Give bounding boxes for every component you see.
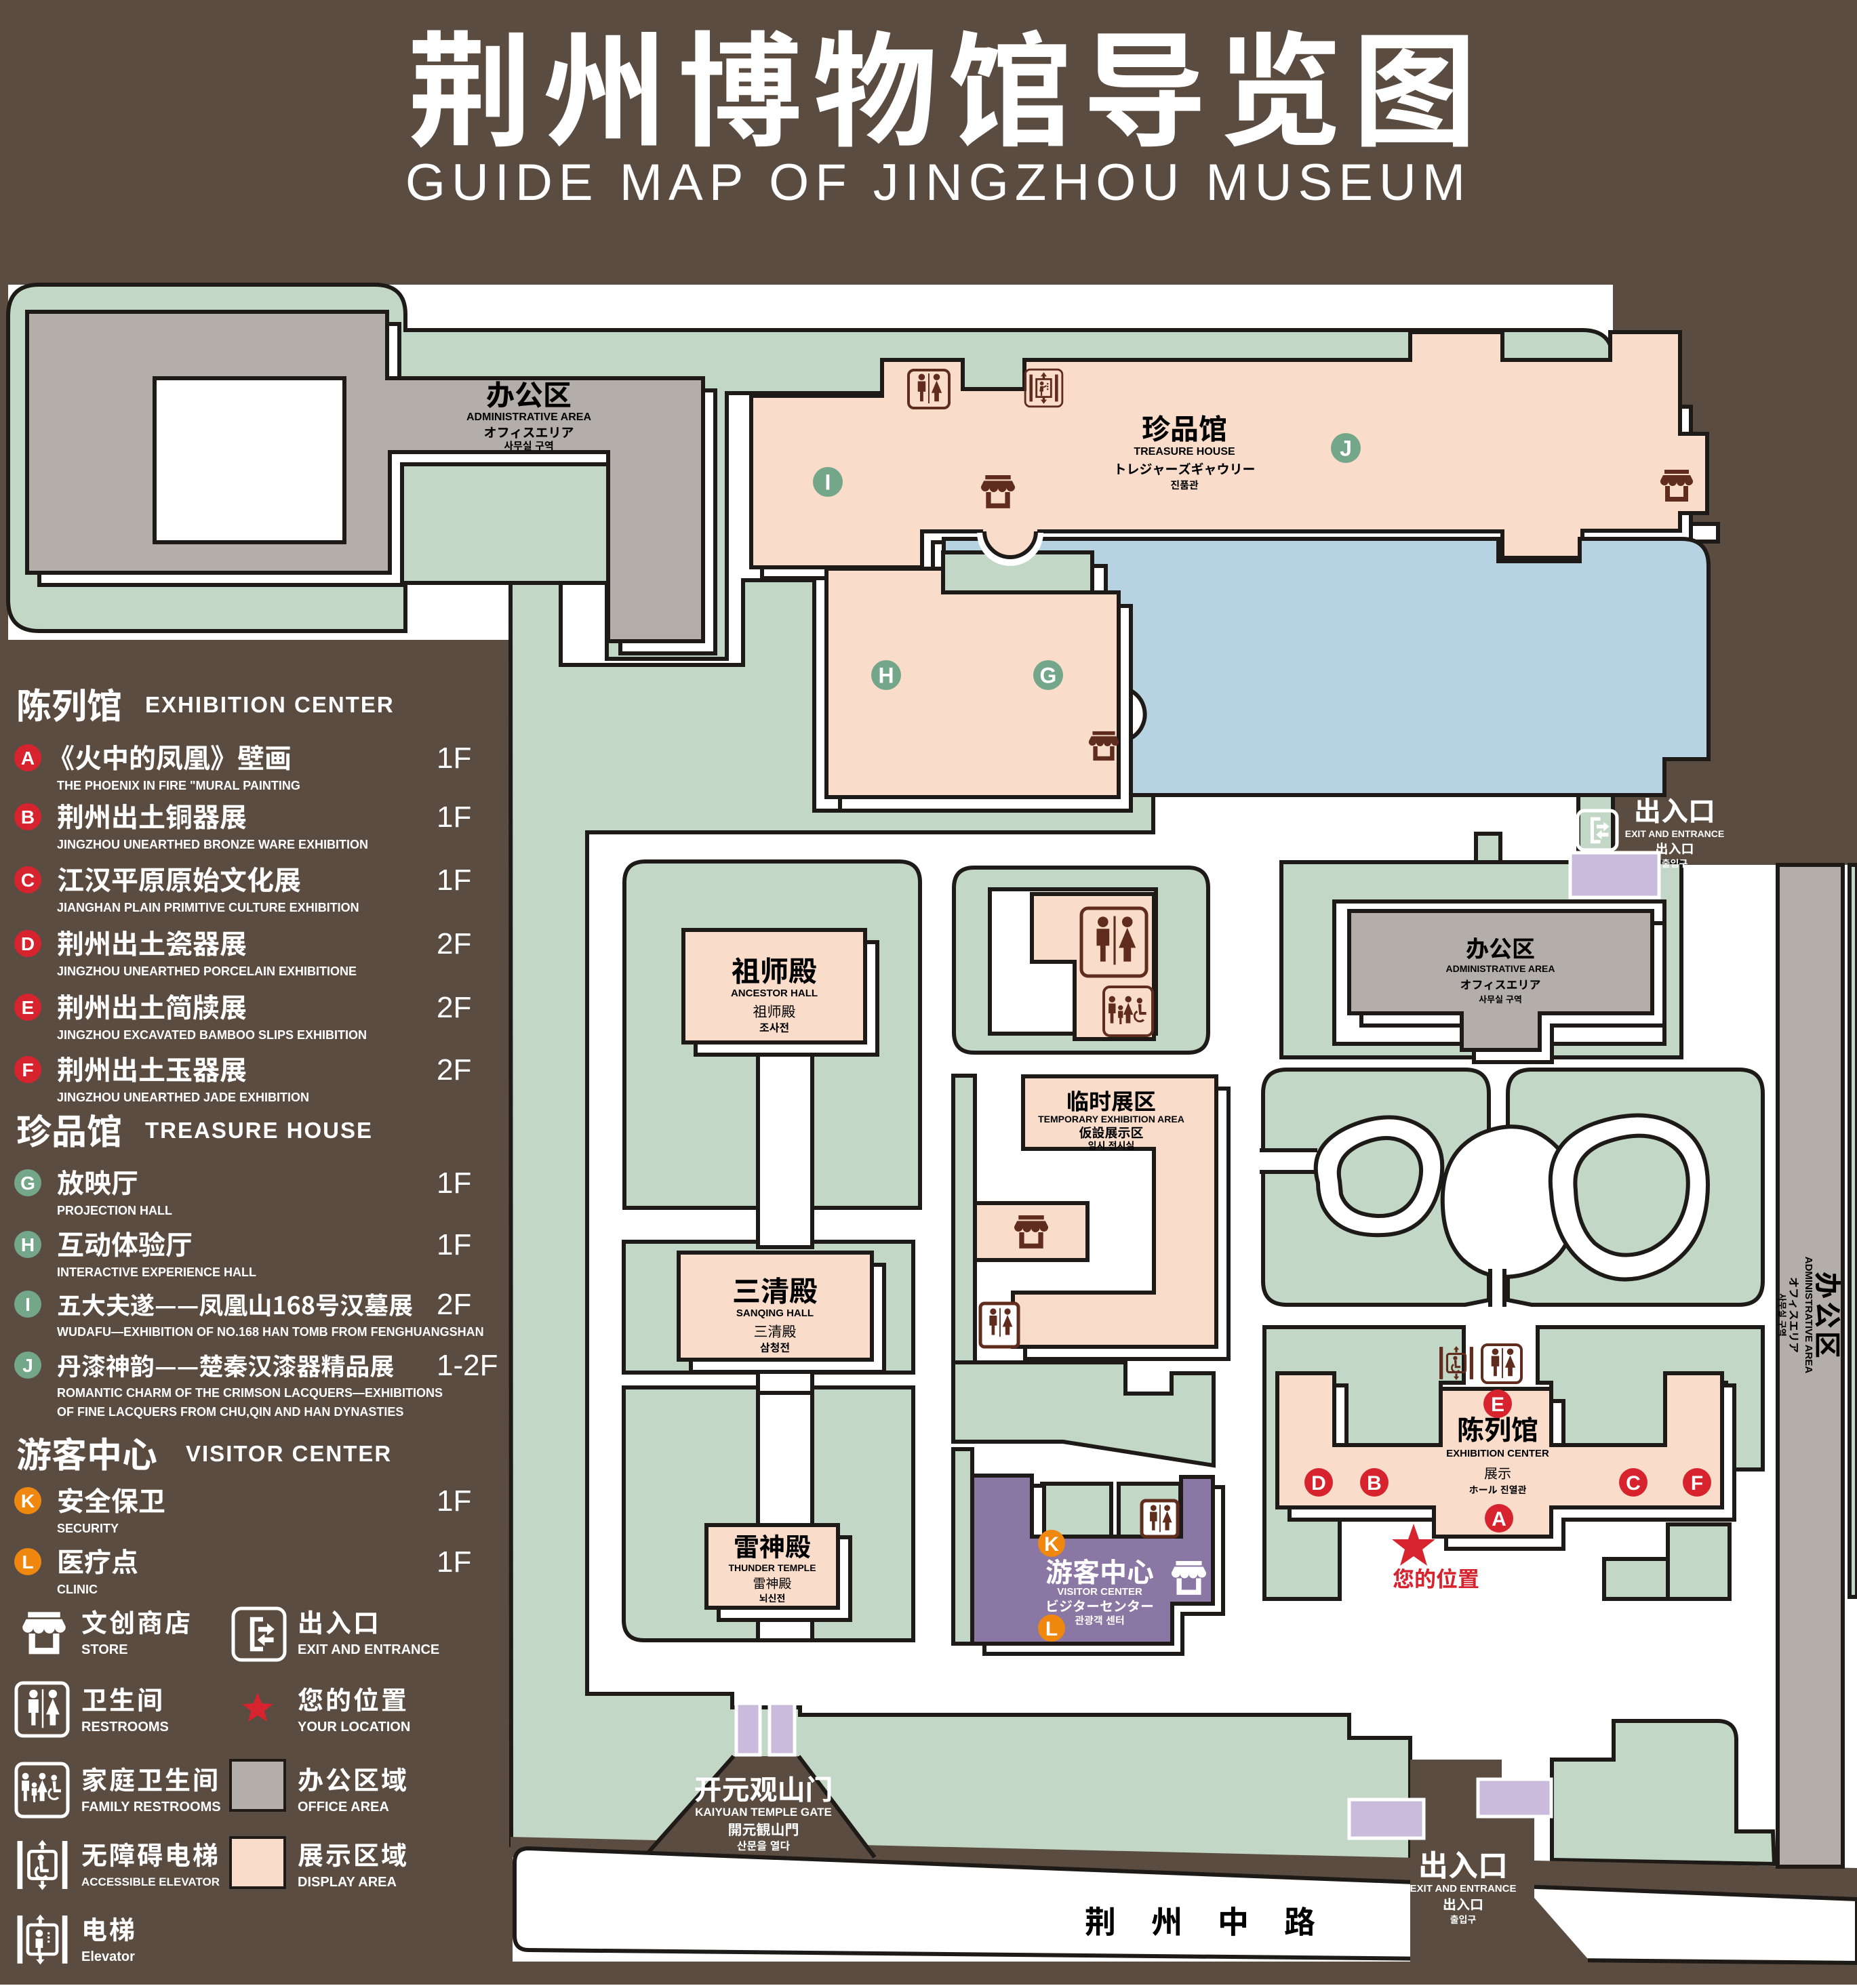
svg-text:C: C xyxy=(1626,1472,1641,1495)
svg-text:K: K xyxy=(21,1490,35,1512)
svg-text:1F: 1F xyxy=(437,1484,471,1518)
svg-text:2F: 2F xyxy=(437,991,471,1024)
svg-text:EXHIBITION CENTER: EXHIBITION CENTER xyxy=(1446,1448,1549,1459)
svg-text:ADMINISTRATIVE AREA: ADMINISTRATIVE AREA xyxy=(1803,1257,1814,1374)
svg-text:JINGZHOU EXCAVATED BAMBOO SLIP: JINGZHOU EXCAVATED BAMBOO SLIPS EXHIBITI… xyxy=(57,1028,367,1042)
svg-text:1F: 1F xyxy=(437,1545,471,1579)
svg-text:THUNDER TEMPLE: THUNDER TEMPLE xyxy=(728,1562,816,1573)
svg-text:L: L xyxy=(1045,1618,1058,1640)
svg-text:2F: 2F xyxy=(437,927,471,960)
svg-text:B: B xyxy=(21,807,35,828)
svg-text:F: F xyxy=(22,1059,33,1080)
svg-text:H: H xyxy=(21,1234,35,1255)
svg-text:J: J xyxy=(22,1355,33,1376)
svg-text:Elevator: Elevator xyxy=(81,1949,135,1964)
svg-text:VISITOR CENTER: VISITOR CENTER xyxy=(1057,1586,1142,1598)
svg-text:2F: 2F xyxy=(437,1288,471,1321)
svg-text:SECURITY: SECURITY xyxy=(57,1522,119,1535)
svg-text:EXIT AND ENTRANCE: EXIT AND ENTRANCE xyxy=(298,1642,439,1657)
svg-text:SANQING HALL: SANQING HALL xyxy=(736,1307,814,1319)
svg-text:EXIT AND ENTRANCE: EXIT AND ENTRANCE xyxy=(1410,1883,1517,1894)
svg-text:STORE: STORE xyxy=(81,1642,128,1657)
svg-text:I: I xyxy=(825,470,831,495)
svg-text:E: E xyxy=(1491,1394,1504,1416)
svg-text:L: L xyxy=(22,1551,33,1573)
svg-text:G: G xyxy=(20,1173,35,1194)
svg-text:EXIT AND ENTRANCE: EXIT AND ENTRANCE xyxy=(1625,828,1725,839)
svg-text:E: E xyxy=(22,997,35,1018)
svg-text:G: G xyxy=(1040,664,1057,688)
svg-text:VISITOR CENTER: VISITOR CENTER xyxy=(186,1441,392,1466)
svg-text:1F: 1F xyxy=(437,1228,471,1261)
svg-text:A: A xyxy=(1492,1508,1506,1530)
svg-text:ROMANTIC CHARM OF THE CRIMSON: ROMANTIC CHARM OF THE CRIMSON LACQUERS—E… xyxy=(57,1386,443,1400)
svg-text:D: D xyxy=(21,933,35,954)
svg-text:OF FINE LACQUERS FROM CHU,QIN: OF FINE LACQUERS FROM CHU,QIN AND HAN DY… xyxy=(57,1405,403,1419)
svg-text:K: K xyxy=(1044,1533,1059,1556)
svg-text:YOUR LOCATION: YOUR LOCATION xyxy=(298,1720,410,1735)
svg-text:ACCESSIBLE ELEVATOR: ACCESSIBLE ELEVATOR xyxy=(81,1875,220,1888)
svg-text:JIANGHAN PLAIN PRIMITIVE CULTU: JIANGHAN PLAIN PRIMITIVE CULTURE EXHIBIT… xyxy=(57,901,359,914)
svg-text:ADMINISTRATIVE AREA: ADMINISTRATIVE AREA xyxy=(466,411,591,423)
svg-text:DISPLAY AREA: DISPLAY AREA xyxy=(298,1875,397,1890)
svg-text:OFFICE AREA: OFFICE AREA xyxy=(298,1800,389,1814)
svg-text:TREASURE HOUSE: TREASURE HOUSE xyxy=(145,1118,373,1143)
svg-text:1-2F: 1-2F xyxy=(437,1349,498,1382)
svg-text:1F: 1F xyxy=(437,742,471,775)
svg-text:J: J xyxy=(1340,437,1352,461)
svg-text:B: B xyxy=(1367,1472,1382,1495)
svg-text:H: H xyxy=(878,664,894,688)
svg-text:RESTROOMS: RESTROOMS xyxy=(81,1720,169,1735)
svg-text:TREASURE HOUSE: TREASURE HOUSE xyxy=(1134,446,1235,458)
svg-text:INTERACTIVE EXPERIENCE HALL: INTERACTIVE EXPERIENCE HALL xyxy=(57,1265,256,1279)
svg-text:FAMILY RESTROOMS: FAMILY RESTROOMS xyxy=(81,1800,221,1814)
svg-text:WUDAFU—EXHIBITION OF NO.168 HA: WUDAFU—EXHIBITION OF NO.168 HAN TOMB FRO… xyxy=(57,1325,484,1339)
svg-text:ANCESTOR HALL: ANCESTOR HALL xyxy=(731,988,818,999)
svg-text:A: A xyxy=(21,748,35,769)
svg-text:1F: 1F xyxy=(437,1167,471,1200)
svg-text:I: I xyxy=(25,1294,31,1315)
svg-text:JINGZHOU UNEARTHED BRONZE WARE: JINGZHOU UNEARTHED BRONZE WARE EXHIBITIO… xyxy=(57,838,368,851)
svg-text:JINGZHOU UNEARTHED PORCELAIN E: JINGZHOU UNEARTHED PORCELAIN EXHIBITIONE xyxy=(57,965,357,978)
svg-text:CLINIC: CLINIC xyxy=(57,1583,98,1596)
svg-text:PROJECTION HALL: PROJECTION HALL xyxy=(57,1204,172,1217)
svg-text:ADMINISTRATIVE AREA: ADMINISTRATIVE AREA xyxy=(1446,963,1555,974)
svg-text:JINGZHOU UNEARTHED JADE EXHIBI: JINGZHOU UNEARTHED JADE EXHIBITION xyxy=(57,1091,309,1104)
svg-text:EXHIBITION CENTER: EXHIBITION CENTER xyxy=(145,692,395,717)
svg-text:D: D xyxy=(1311,1472,1326,1495)
svg-text:1F: 1F xyxy=(437,800,471,834)
svg-text:F: F xyxy=(1691,1472,1703,1495)
svg-text:2F: 2F xyxy=(437,1053,471,1087)
svg-text:KAIYUAN TEMPLE GATE: KAIYUAN TEMPLE GATE xyxy=(695,1806,832,1819)
svg-text:C: C xyxy=(21,870,35,891)
svg-text:THE PHOENIX IN FIRE "MURAL PAI: THE PHOENIX IN FIRE "MURAL PAINTING xyxy=(57,779,300,792)
svg-text:1F: 1F xyxy=(437,864,471,897)
svg-text:TEMPORARY EXHIBITION AREA: TEMPORARY EXHIBITION AREA xyxy=(1038,1114,1184,1124)
svg-text:GUIDE MAP OF JINGZHOU MUSEUM: GUIDE MAP OF JINGZHOU MUSEUM xyxy=(405,154,1471,211)
